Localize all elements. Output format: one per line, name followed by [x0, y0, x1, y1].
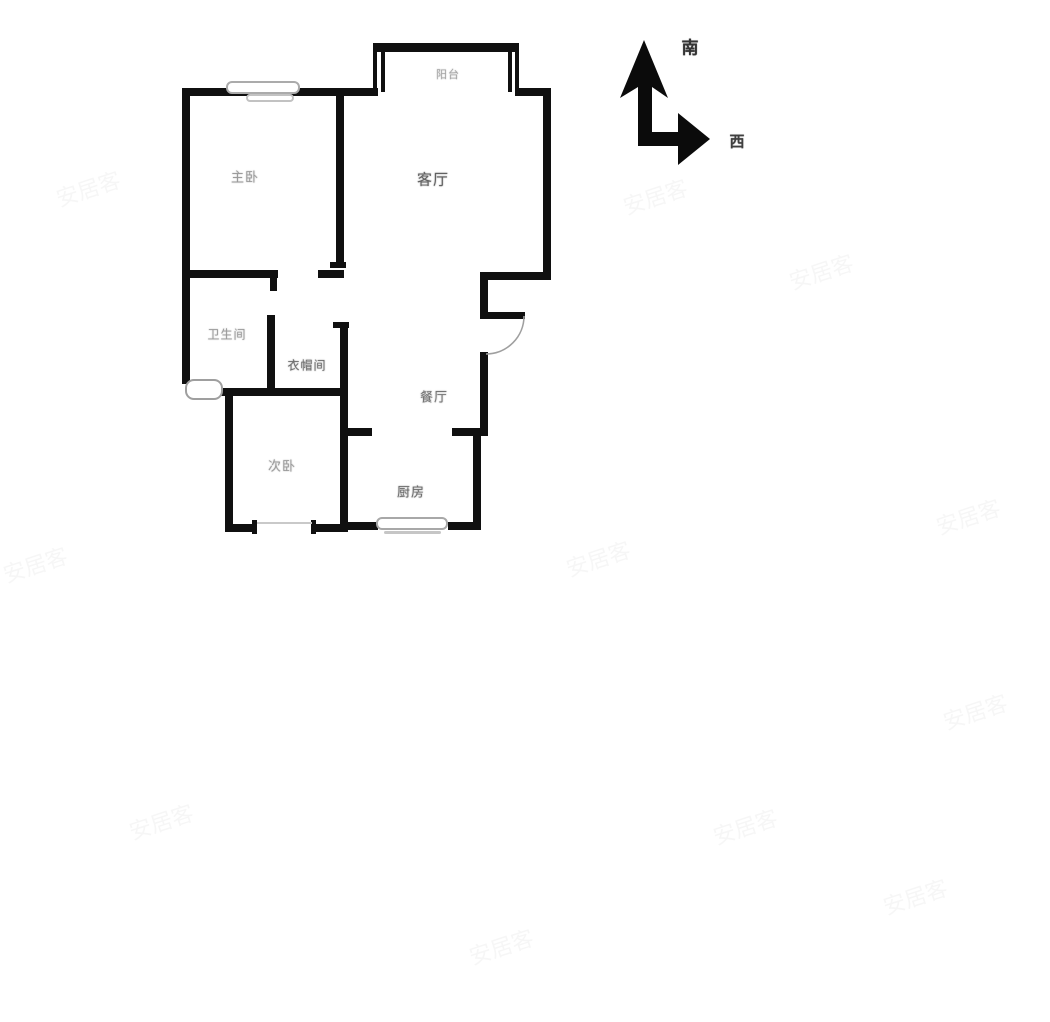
- floor-plan-page: 阳台 客厅 主卧 卫生间 衣帽间 餐厅 次卧 厨房 南 西 安居客 安居客 安居…: [0, 0, 1050, 1022]
- wall-cloak-bottom: [218, 388, 348, 396]
- kitchen-window-inner: [384, 531, 441, 534]
- floor-plan-drawing: [0, 0, 1050, 1022]
- wall-balcony-right-b: [515, 52, 519, 92]
- wall-bath-cloak-divider: [267, 315, 275, 392]
- walls: [182, 43, 551, 534]
- wall-divider-end-cap: [330, 262, 346, 268]
- door-jamb-master: [270, 278, 277, 291]
- wall-secondbed-left: [225, 392, 233, 532]
- wall-balcony-left-b: [381, 52, 385, 92]
- room-label-dining-room: 餐厅: [420, 387, 448, 406]
- wall-cloak-right-cap: [333, 322, 349, 328]
- wall-entry-lower: [480, 352, 488, 436]
- room-label-cloakroom: 衣帽间: [287, 357, 326, 374]
- kitchen-window: [377, 518, 447, 529]
- room-label-bathroom: 卫生间: [207, 326, 246, 343]
- compass-label-south: 南: [682, 34, 699, 59]
- wall-kitchen-top-right: [452, 428, 488, 436]
- master-bedroom-window: [227, 82, 299, 93]
- room-label-kitchen: 厨房: [397, 482, 425, 501]
- room-label-master-bedroom: 主卧: [231, 167, 259, 186]
- window-jamb-secondbed-left: [252, 520, 257, 534]
- room-label-second-bedroom: 次卧: [268, 456, 296, 475]
- wall-step: [480, 272, 551, 280]
- wall-below-master-left: [182, 270, 278, 278]
- wall-balcony-left-a: [373, 52, 377, 92]
- wall-balcony-top: [373, 43, 519, 52]
- wall-kitchen-bottom-left: [344, 522, 378, 530]
- wall-balcony-right-a: [508, 52, 512, 92]
- entry-door-arc: [486, 316, 524, 354]
- bathroom-window: [186, 380, 222, 399]
- wall-kitchen-right: [473, 428, 481, 530]
- wall-secondbed-right: [340, 322, 348, 532]
- room-label-balcony: 阳台: [436, 66, 460, 82]
- wall-entry-upper: [480, 272, 488, 318]
- wall-kitchen-top-left: [344, 428, 372, 436]
- compass: [620, 40, 710, 165]
- wall-living-right: [543, 88, 551, 280]
- wall-master-living-divider: [336, 96, 344, 266]
- compass-arrow-up: [620, 40, 668, 146]
- second-bedroom-window-line: [257, 522, 312, 524]
- room-label-living-room: 客厅: [417, 169, 449, 190]
- wall-below-master-right: [318, 270, 344, 278]
- wall-secondbed-bottom-right: [314, 524, 348, 532]
- compass-label-west: 西: [729, 131, 744, 152]
- master-bedroom-window-inner: [247, 95, 293, 101]
- wall-kitchen-bottom-right: [448, 522, 481, 530]
- wall-left-outer: [182, 88, 190, 384]
- entry-door-leaf: [480, 312, 525, 319]
- wall-secondbed-bottom-left: [225, 524, 255, 532]
